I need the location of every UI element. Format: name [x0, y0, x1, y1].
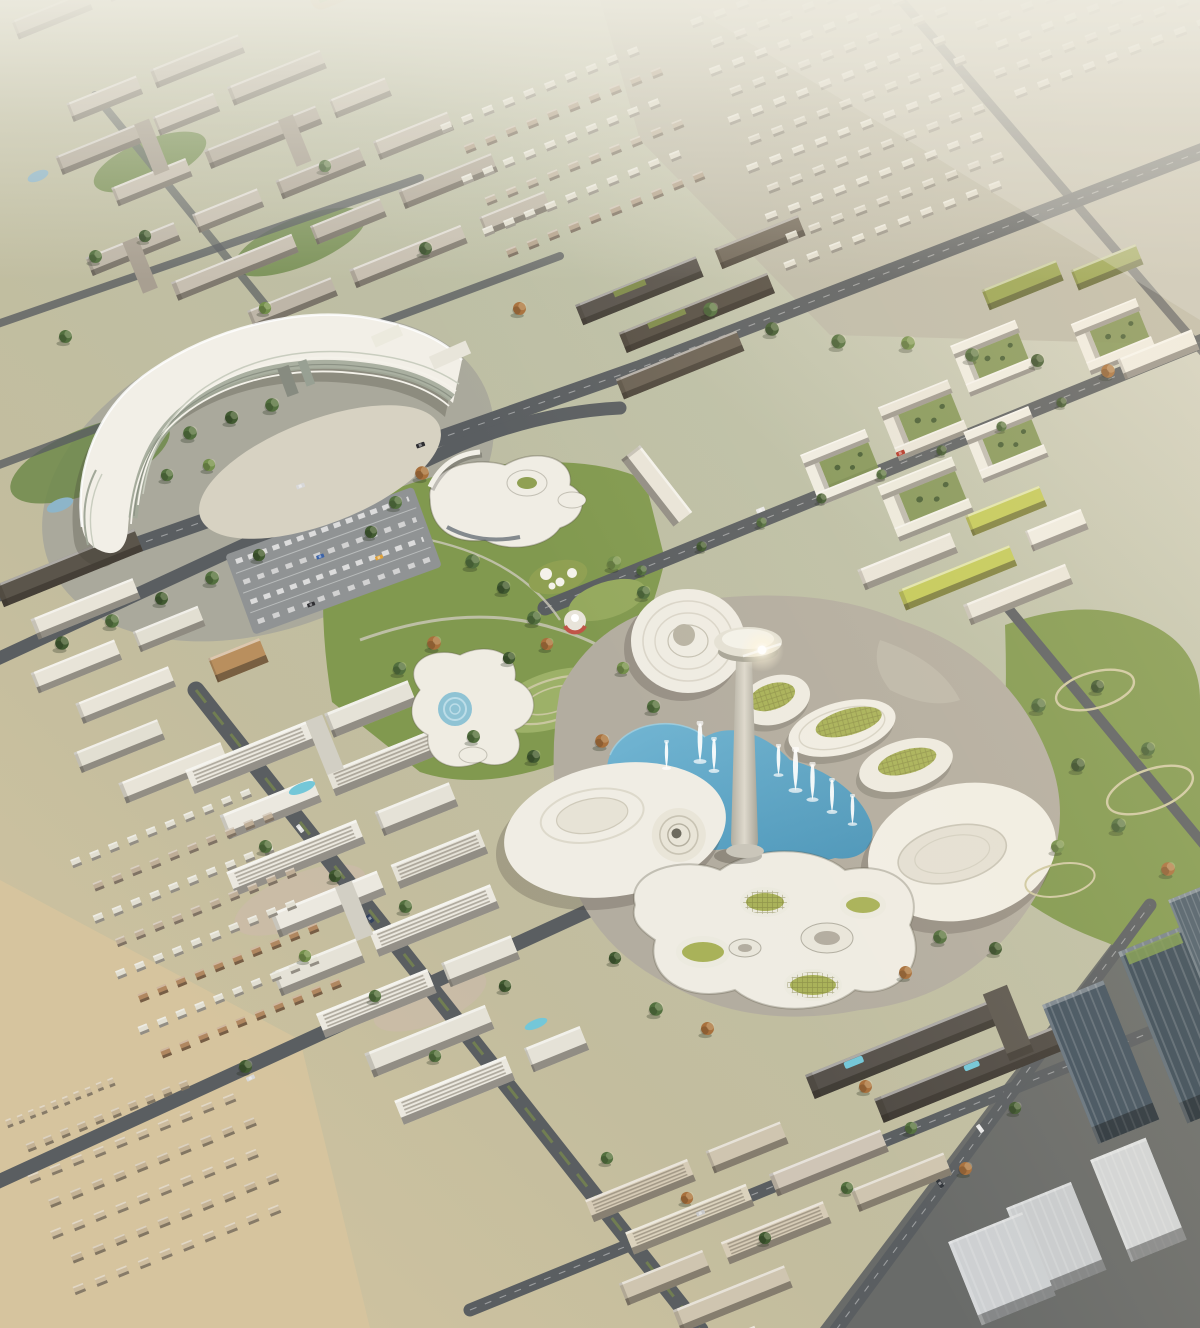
- aerial-city-rendering: [0, 0, 1200, 1328]
- rendering-canvas: [0, 0, 1200, 1328]
